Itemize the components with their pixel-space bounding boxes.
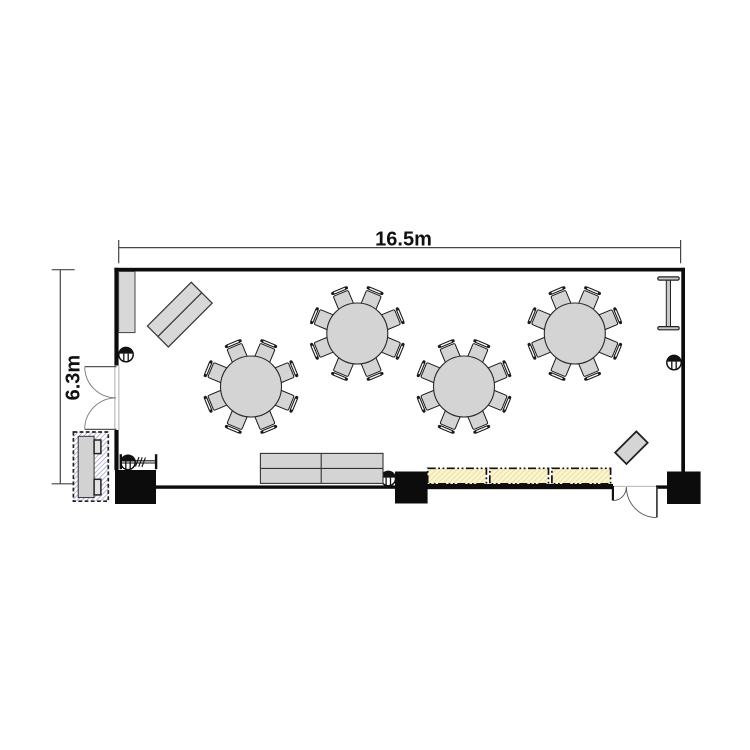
svg-text:6.3m: 6.3m	[63, 355, 85, 401]
svg-text:16.5m: 16.5m	[375, 229, 432, 251]
